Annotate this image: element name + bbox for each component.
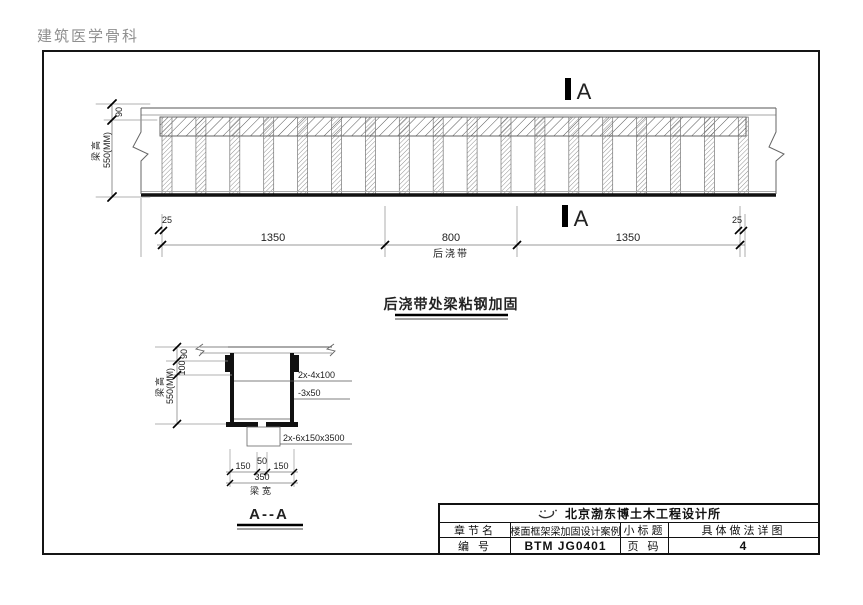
beam-height-label: 梁高 <box>90 139 101 161</box>
steel-plate-band <box>160 117 746 136</box>
page-value: 4 <box>669 538 818 553</box>
batten-strip <box>467 117 477 196</box>
title-block-company-row: 北京渤东博土木工程设计所 <box>440 505 818 523</box>
batten-strip <box>196 117 206 196</box>
dim-1350-left: 1350 <box>261 232 285 244</box>
section-beam-height-value: 550(MM) <box>165 368 175 404</box>
section-mark-bottom: A <box>562 205 589 231</box>
elevation-title: 后浇带处梁粘钢加固 <box>384 296 519 319</box>
dim-25-right: 25 <box>732 215 742 225</box>
section-detail: 2x-4x100 -3x50 2x-6x150x3500 <box>196 344 352 446</box>
section-dim-90: 90 <box>179 349 189 359</box>
batten-strip <box>535 117 545 196</box>
subtitle-value: 具体做法详图 <box>669 523 818 537</box>
post-cast-strip-label: 后浇带 <box>433 247 469 260</box>
break-line-right <box>769 108 784 194</box>
angle-plate-label: 2x-4x100 <box>298 370 335 380</box>
side-plate-label: -3x50 <box>298 388 321 398</box>
dim-25-left: 25 <box>162 215 172 225</box>
elevation-bottom-dimension: 25 1350 800 1350 25 后浇带 <box>141 198 747 260</box>
dim-90-label: 90 <box>114 107 124 117</box>
bottom-plate-label: 2x-6x150x3500 <box>283 433 345 443</box>
steel-wall-right <box>290 353 294 427</box>
batten-strip <box>332 117 342 196</box>
bottom-plate-right <box>266 422 298 427</box>
section-dim-150-left: 150 <box>235 461 250 471</box>
batten-strip <box>399 117 409 196</box>
section-break-right <box>327 344 335 356</box>
section-dim-350: 350 <box>254 472 269 482</box>
section-dim-50: 50 <box>257 456 267 466</box>
batten-strip <box>501 117 511 196</box>
chapter-value: 楼面框架梁加固设计案例 <box>511 523 621 537</box>
beam-width-label: 梁宽 <box>250 485 274 496</box>
batten-strip <box>637 117 647 196</box>
section-mark-letter: A <box>574 206 589 231</box>
elevation-title-text: 后浇带处梁粘钢加固 <box>384 296 519 312</box>
steel-wall-left <box>230 353 234 427</box>
batten-strip <box>365 117 375 196</box>
page-label: 页 码 <box>621 538 669 553</box>
bottom-plate-projection <box>247 427 280 446</box>
beam-elevation <box>133 108 784 196</box>
section-beam-height-label: 梁高 <box>154 375 165 397</box>
batten-strip <box>671 117 681 196</box>
section-title-text: A--A <box>249 506 289 523</box>
angle-plate-left <box>225 355 230 372</box>
dim-1350-right: 1350 <box>616 232 640 244</box>
batten-strip <box>264 117 274 196</box>
title-block-row-2: 章节名 楼面框架梁加固设计案例 小标题 具体做法详图 <box>440 523 818 538</box>
section-mark-bar <box>562 205 568 227</box>
company-name: 北京渤东博土木工程设计所 <box>565 505 721 522</box>
batten-strip <box>298 117 308 196</box>
batten-strip <box>230 117 240 196</box>
bottom-plate-left <box>226 422 258 427</box>
batten-strip <box>704 117 714 196</box>
batten-strip <box>738 117 748 196</box>
batten-strip <box>433 117 443 196</box>
batten-strip <box>603 117 613 196</box>
break-line-left <box>133 108 148 194</box>
section-title: A--A <box>237 506 303 529</box>
title-block: 北京渤东博土木工程设计所 章节名 楼面框架梁加固设计案例 小标题 具体做法详图 … <box>438 503 820 555</box>
section-dim-150-right: 150 <box>273 461 288 471</box>
dim-800: 800 <box>442 232 460 244</box>
section-mark-top: A <box>565 78 592 104</box>
beam-height-value: 550(MM) <box>102 132 112 168</box>
section-mark-bar <box>565 78 571 100</box>
section-break-left <box>196 344 204 356</box>
section-dim-100: 100 <box>177 360 187 375</box>
title-block-row-3: 编 号 BTM JG0401 页 码 4 <box>440 538 818 553</box>
number-value: BTM JG0401 <box>511 538 621 553</box>
company-logo-icon <box>537 508 559 520</box>
chapter-label: 章节名 <box>440 523 511 537</box>
batten-strip <box>569 117 579 196</box>
section-bottom-dimension: 150 50 150 350 梁宽 <box>226 449 298 496</box>
subtitle-label: 小标题 <box>621 523 669 537</box>
section-mark-letter: A <box>577 79 592 104</box>
number-label: 编 号 <box>440 538 511 553</box>
drawing-sheet: 建筑医学骨科 <box>0 0 863 605</box>
section-left-dimension: 90 100 梁高 550(MM) <box>154 343 232 428</box>
batten-strip <box>162 117 172 196</box>
